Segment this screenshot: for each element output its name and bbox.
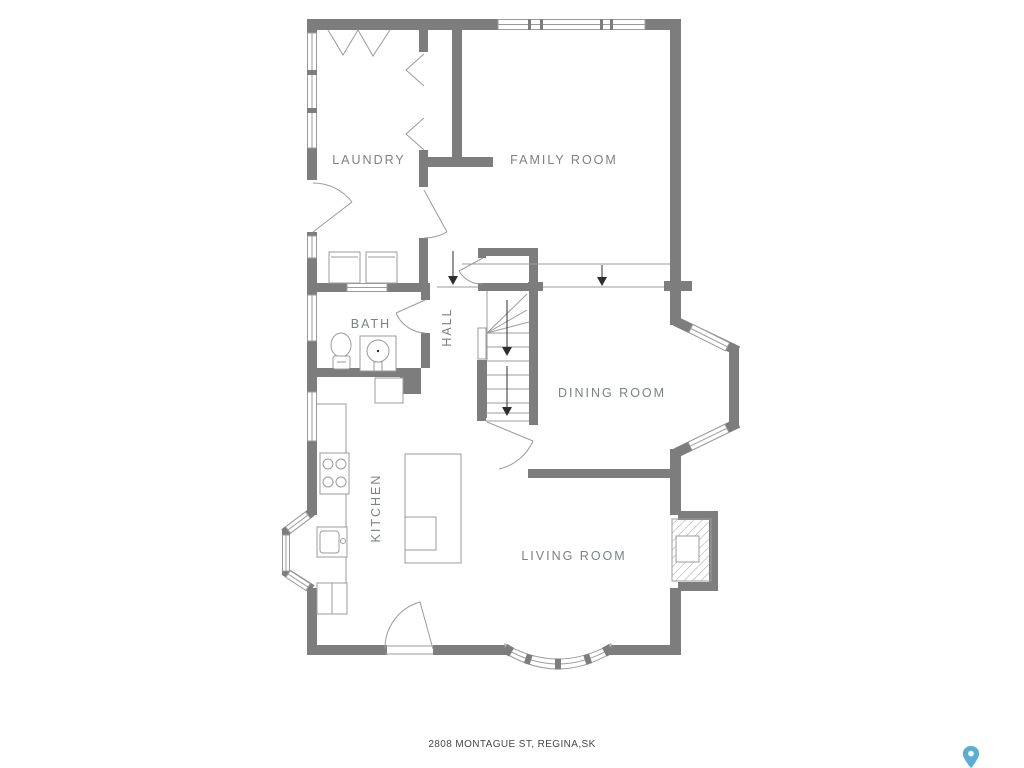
walls: [282, 19, 739, 655]
room-label-dining-room: DINING ROOM: [558, 386, 666, 400]
hall-step-arrow: [448, 251, 458, 285]
bowed-window: [502, 644, 613, 670]
toilet: [331, 333, 351, 369]
stairs-down-arrow-1: [502, 300, 512, 356]
fireplace: [672, 519, 711, 581]
stove: [320, 453, 349, 494]
room-label-laundry: LAUNDRY: [332, 153, 406, 167]
cabinet: [375, 378, 403, 403]
stairs-down-arrow-2: [502, 366, 512, 416]
room-label-family-room: FAMILY ROOM: [510, 153, 618, 167]
room-label-hall: HALL: [440, 307, 454, 346]
bath-sink: [360, 336, 396, 371]
floorplan-page: LAUNDRY FAMILY ROOM BATH HALL DINING ROO…: [0, 0, 1024, 768]
base-cabinet: [317, 583, 347, 614]
floorplan-svg: LAUNDRY FAMILY ROOM BATH HALL DINING ROO…: [0, 0, 1024, 768]
room-label-kitchen: KITCHEN: [369, 474, 383, 543]
room-label-living-room: LIVING ROOM: [521, 549, 626, 563]
address-text: 2808 MONTAGUE ST, REGINA,SK: [428, 739, 595, 750]
kitchen-sink: [317, 527, 347, 557]
room-label-bath: BATH: [351, 317, 391, 331]
dining-step-arrow: [597, 265, 607, 286]
kitchen-island: [405, 454, 461, 563]
map-pin-icon: [963, 746, 979, 768]
